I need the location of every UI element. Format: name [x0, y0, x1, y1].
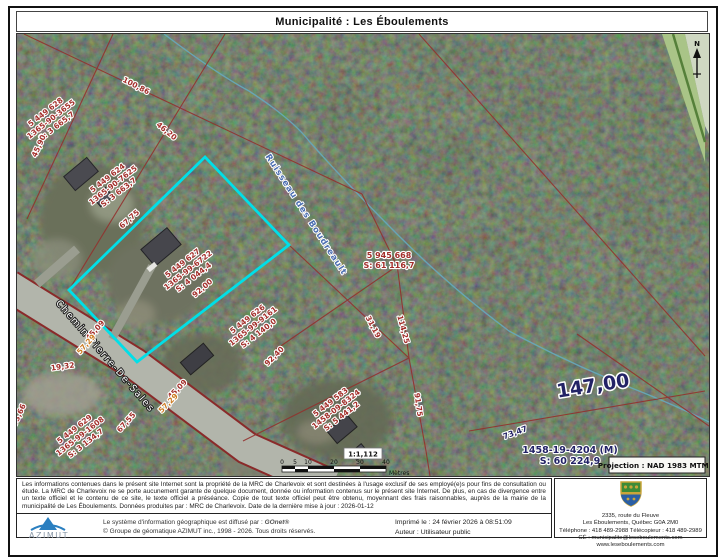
svg-text:30: 30	[356, 459, 364, 466]
svg-text:AZIMUT: AZIMUT	[29, 531, 69, 540]
aerial-map[interactable]: Chemin Pierre-De-Sales Ruisseau des Boud…	[17, 34, 709, 476]
copyright-text: © Groupe de géomatique AZIMUT inc., 1998…	[103, 527, 315, 536]
map-title-bar: Municipalité : Les Éboulements	[16, 11, 708, 32]
print-info: Imprimé le : 24 février 2026 à 08:51:09 …	[395, 518, 512, 537]
municipality-address: 2335, route du Fleuve Les Éboulements, Q…	[555, 513, 706, 549]
gonet-brand: GOnet®	[265, 519, 290, 526]
svg-text:N: N	[694, 40, 700, 48]
svg-text:1458-19-4204 (M): 1458-19-4204 (M)	[522, 445, 617, 456]
author-label: Auteur : Utilisateur public	[395, 528, 512, 538]
svg-text:10: 10	[304, 459, 312, 466]
municipal-crest-icon	[619, 481, 643, 507]
svg-text:5: 5	[293, 459, 297, 466]
scale-unit: Mètres	[389, 470, 409, 476]
scale-ratio: 1:1,112	[348, 451, 378, 459]
svg-text:0: 0	[280, 459, 284, 466]
svg-text:40: 40	[382, 459, 390, 466]
disclaimer-text: Les informations contenues dans le prése…	[17, 479, 551, 514]
municipality-title: Municipalité : Les Éboulements	[275, 16, 448, 28]
address-website[interactable]: www.leseboulements.com	[555, 542, 706, 549]
address-phone: Téléphone : 418 489-2988 Télécopieur : 4…	[555, 528, 706, 535]
projection-label: Projection : NAD 1983 MTM 7	[598, 461, 709, 470]
gonet-credit: Le système d'information géographique es…	[103, 518, 315, 536]
map-viewport[interactable]: Chemin Pierre-De-Sales Ruisseau des Boud…	[16, 33, 710, 477]
footer-municipality-panel: 2335, route du Fleuve Les Éboulements, Q…	[554, 478, 707, 538]
lot-label-5945668: 5 945 668 S: 61 116,7	[364, 251, 415, 270]
azimut-triangle-icon	[39, 517, 57, 530]
printed-date: Imprimé le : 24 février 2026 à 08:51:09	[395, 518, 512, 528]
footer-left-panel: Les informations contenues dans le prése…	[16, 478, 552, 538]
projection-box: Projection : NAD 1983 MTM 7	[598, 457, 709, 473]
svg-text:S: 61 116,7: S: 61 116,7	[364, 261, 415, 270]
address-city: Les Éboulements, Québec G0A 2M0	[555, 520, 706, 527]
svg-text:S: 60 224,9: S: 60 224,9	[540, 456, 601, 467]
diffused-by-text: Le système d'information géographique es…	[103, 519, 265, 526]
svg-text:20: 20	[330, 459, 338, 466]
azimut-logo: AZIMUT	[29, 515, 81, 545]
address-email[interactable]: CÉ : municipalite@leseboulements.com	[555, 535, 706, 542]
svg-text:5 945 668: 5 945 668	[367, 251, 412, 260]
